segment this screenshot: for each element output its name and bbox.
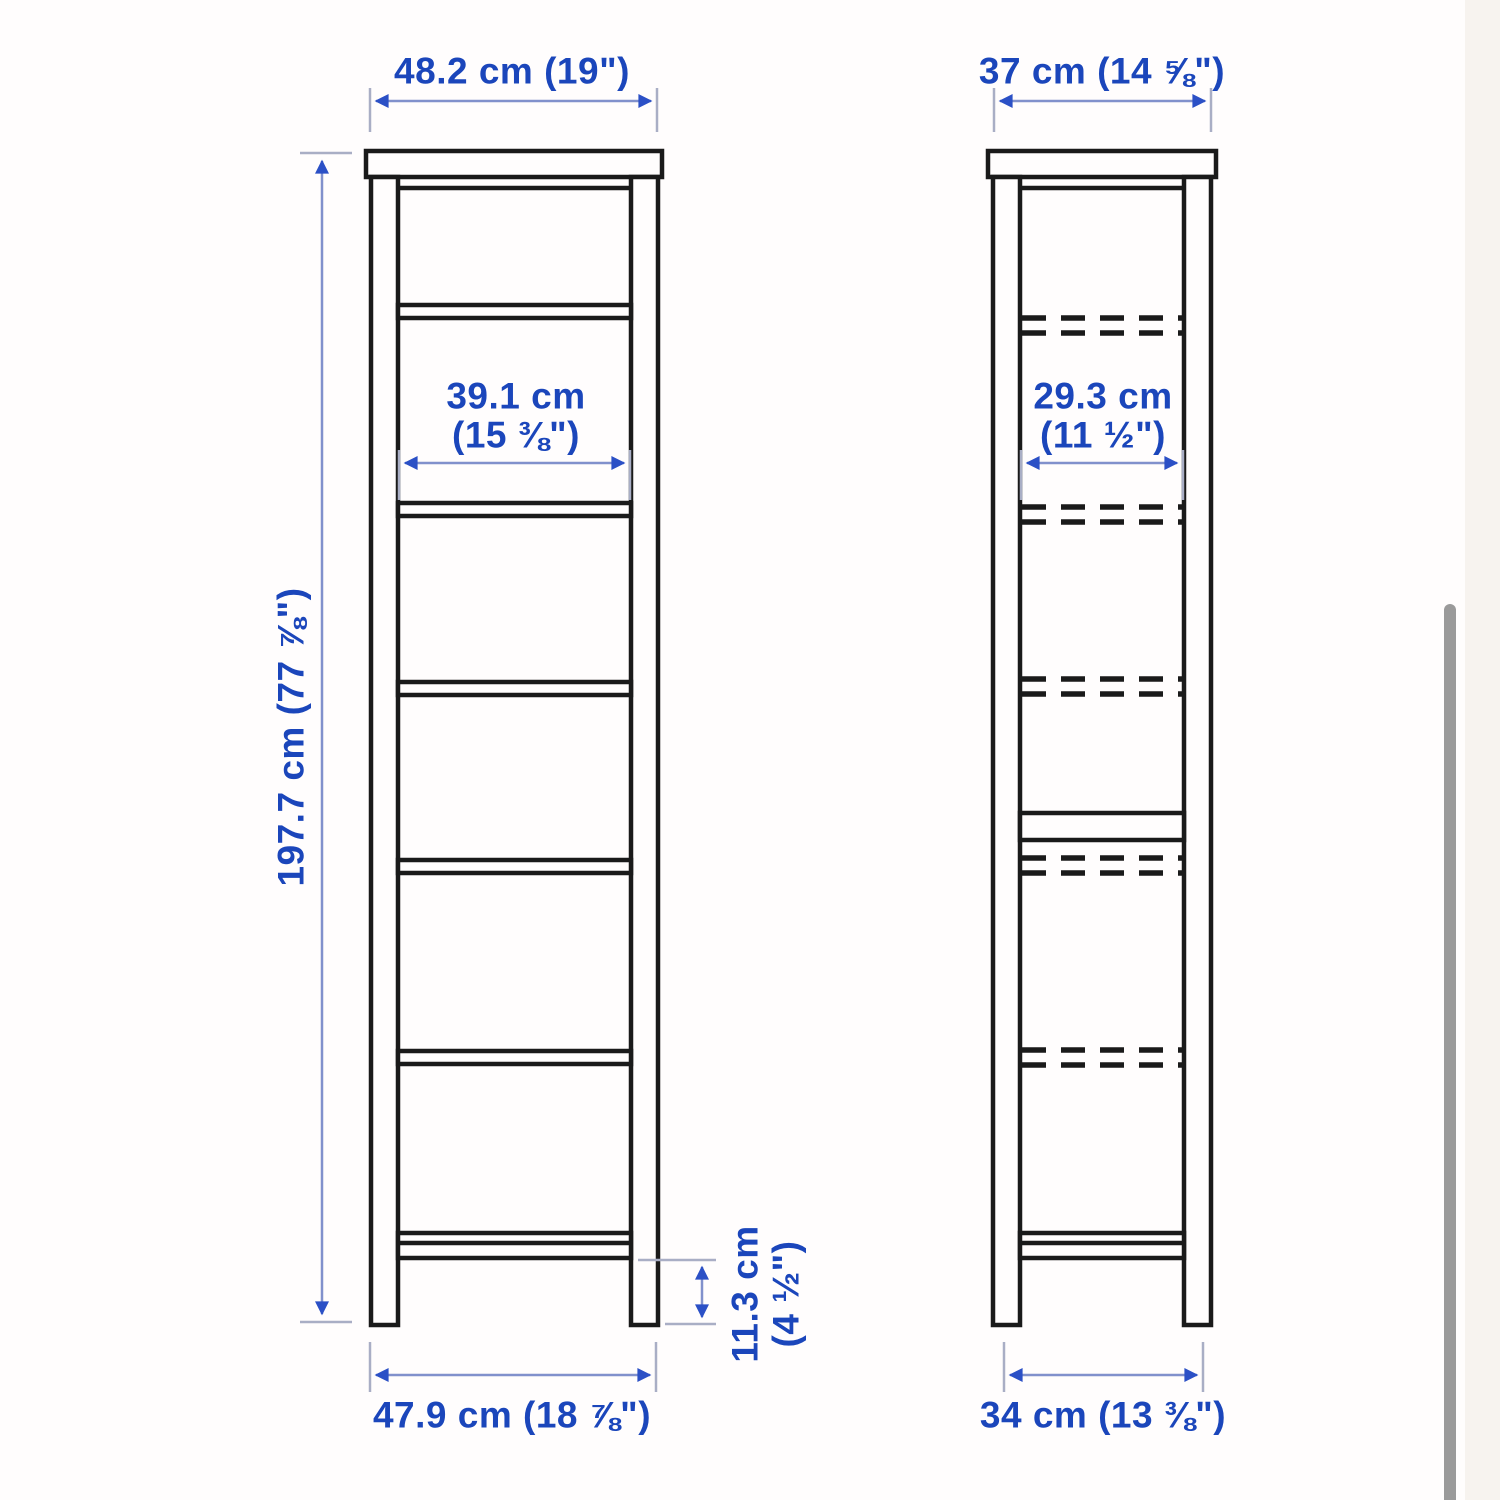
front-top-plate <box>366 151 662 177</box>
dimension-arrows <box>322 101 1205 1375</box>
dimension-label-front-inner-width-cm: 39.1 cm <box>446 377 585 418</box>
dimension-label-base-clearance: 11.3 cm (4 ½") <box>725 1225 806 1362</box>
side-left-leg <box>993 177 1020 1325</box>
front-shelf <box>398 682 631 695</box>
side-bottom-shelf <box>1020 1233 1184 1258</box>
side-mid-rail <box>1020 813 1184 840</box>
dimension-label-base-clearance-cm: 11.3 cm <box>725 1225 766 1362</box>
front-shelf <box>398 305 631 318</box>
dimension-label-side-inner-width-cm: 29.3 cm <box>1033 377 1172 418</box>
dimension-label-front-base-width: 47.9 cm (18 ⅞") <box>373 1396 651 1437</box>
bookcase-front-view <box>366 151 662 1325</box>
front-shelf <box>398 1051 631 1064</box>
front-shelf <box>398 503 631 516</box>
dimension-label-height: 197.7 cm (77 ⅞") <box>272 587 313 886</box>
extension-lines <box>300 88 1211 1392</box>
dimension-label-base-clearance-in: (4 ½") <box>766 1225 807 1362</box>
dimension-label-side-top-width: 37 cm (14 ⅝") <box>979 52 1225 93</box>
front-right-leg <box>631 177 658 1325</box>
bookcase-side-view <box>988 151 1216 1325</box>
dimension-diagram: 48.2 cm (19") 37 cm (14 ⅝") 39.1 cm (15 … <box>0 0 1500 1500</box>
dimension-label-front-top-width: 48.2 cm (19") <box>394 52 630 93</box>
dimension-label-front-inner-width-in: (15 ⅜") <box>452 416 580 457</box>
side-top-plate <box>988 151 1216 177</box>
side-right-leg <box>1184 177 1211 1325</box>
dimension-label-side-inner-width-in: (11 ½") <box>1040 416 1166 457</box>
front-shelf <box>398 860 631 873</box>
front-left-leg <box>371 177 398 1325</box>
dimension-label-side-base-width: 34 cm (13 ⅜") <box>980 1396 1226 1437</box>
front-bottom-shelf <box>398 1233 631 1258</box>
